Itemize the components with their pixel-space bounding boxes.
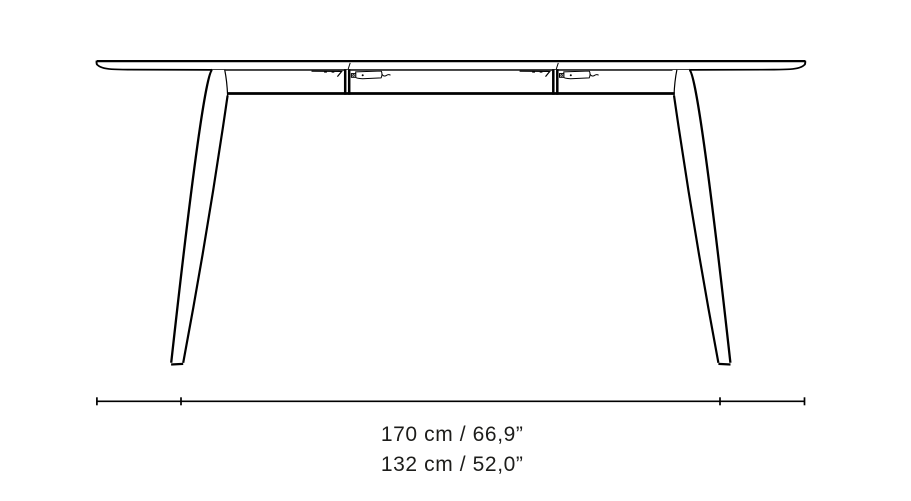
svg-text:170 cm / 66,9”: 170 cm / 66,9”	[381, 423, 524, 446]
svg-text:132 cm / 52,0”: 132 cm / 52,0”	[381, 453, 524, 476]
